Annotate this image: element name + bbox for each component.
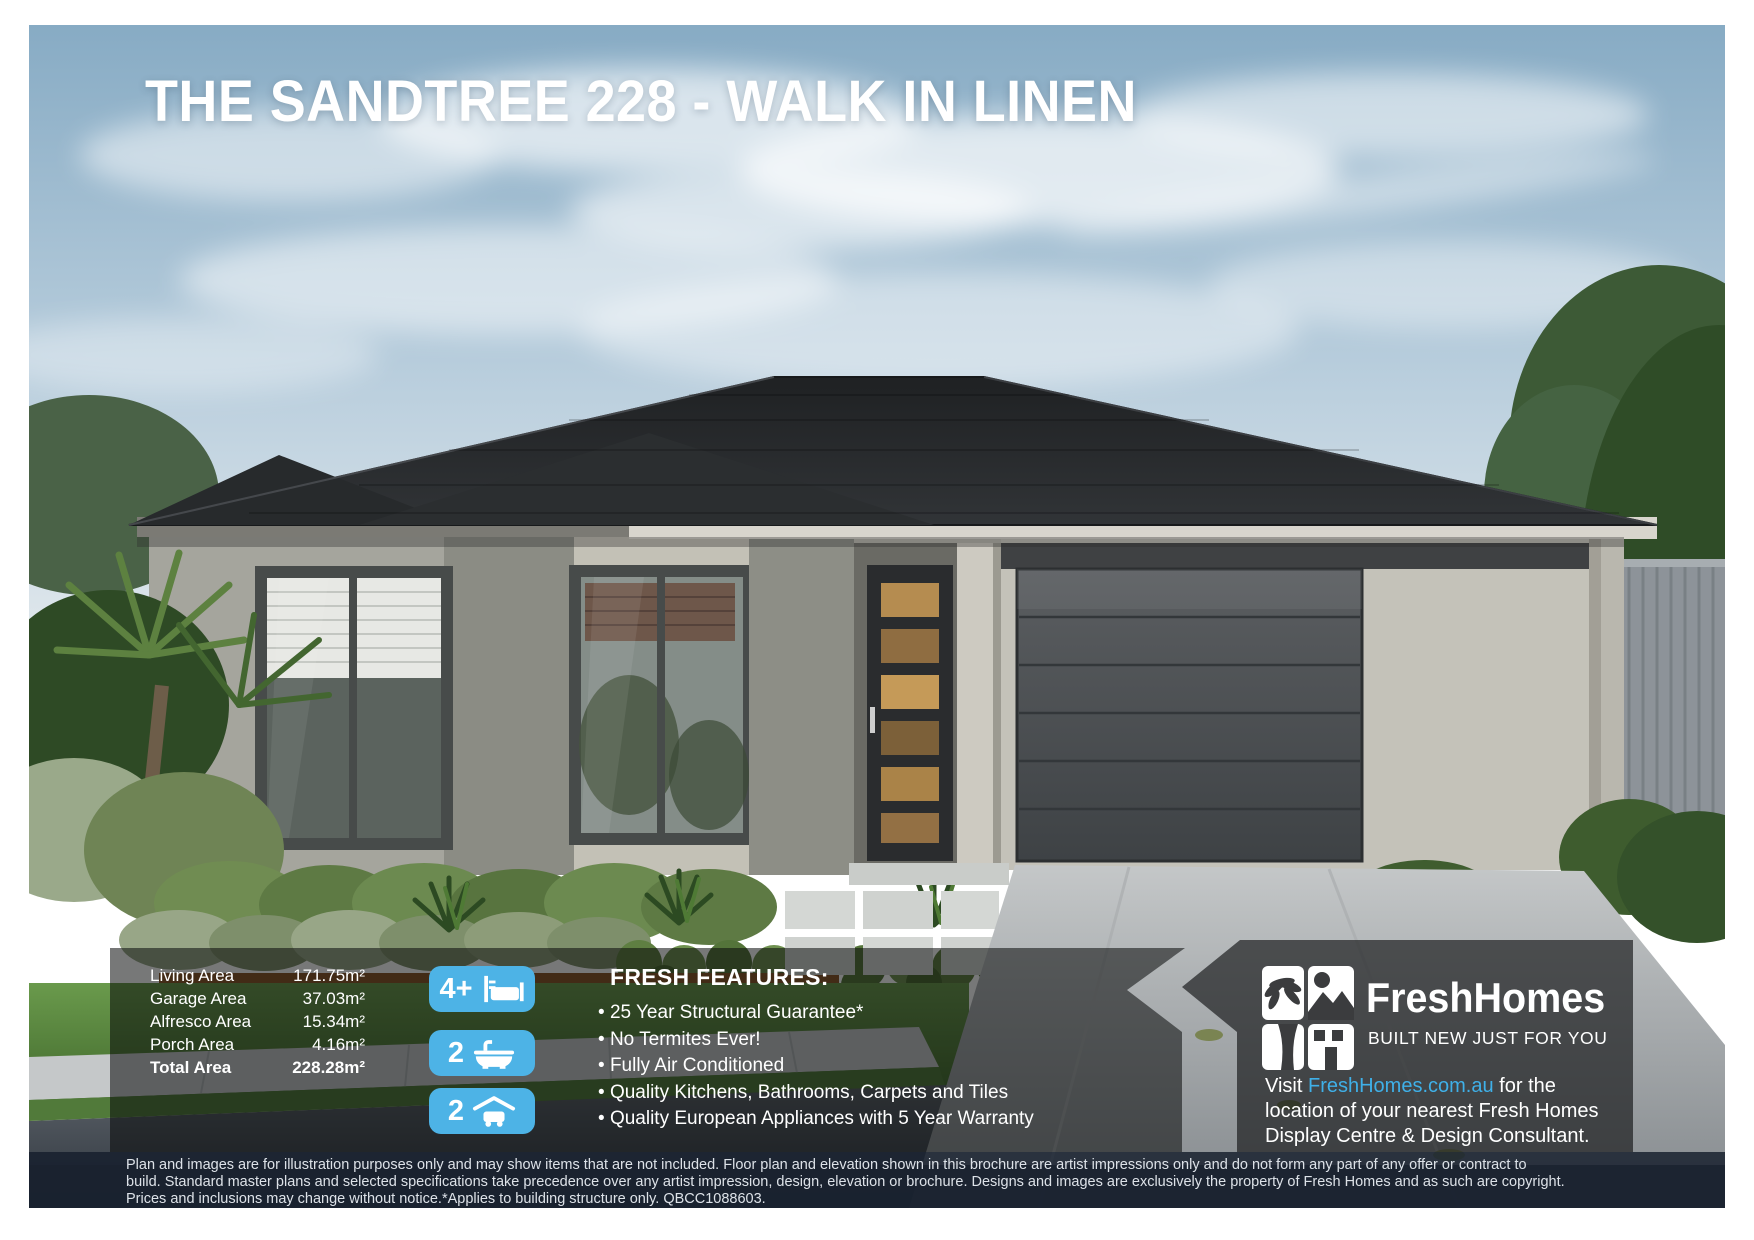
area-row-garage: Garage Area 37.03m² <box>150 987 365 1010</box>
freshhomes-link[interactable]: FreshHomes.com.au <box>1308 1075 1494 1097</box>
features-list: 25 Year Structural Guarantee* No Termite… <box>598 1000 1034 1133</box>
feature-item: 25 Year Structural Guarantee* <box>598 1000 1034 1027</box>
brand-panel: FreshHomes BUILT NEW JUST FOR YOU Visit … <box>1182 940 1633 1152</box>
feature-item: Quality European Appliances with 5 Year … <box>598 1106 1034 1133</box>
left-window <box>255 566 453 850</box>
bed-icon <box>481 974 525 1004</box>
feature-item: No Termites Ever! <box>598 1027 1034 1054</box>
disclaimer-band: Plan and images are for illustration pur… <box>29 1152 1725 1208</box>
feature-item: Fully Air Conditioned <box>598 1053 1034 1080</box>
bathrooms-badge: 2 <box>429 1030 535 1076</box>
bedrooms-badge: 4+ <box>429 966 535 1012</box>
feature-item: Quality Kitchens, Bathrooms, Carpets and… <box>598 1080 1034 1107</box>
visit-line-3: Display Centre & Design Consultant. <box>1265 1124 1599 1149</box>
visit-text: Visit FreshHomes.com.au for the location… <box>1265 1074 1599 1149</box>
brand-name: FreshHomes <box>1366 974 1605 1022</box>
area-table: Living Area 171.75m² Garage Area 37.03m²… <box>150 964 365 1079</box>
front-door <box>867 565 953 861</box>
features-heading: FRESH FEATURES: <box>610 964 829 991</box>
disclaimer-text: Plan and images are for illustration pur… <box>126 1157 1565 1209</box>
brochure-page: THE SANDTREE 228 - WALK IN LINEN Living … <box>0 0 1754 1240</box>
area-row-porch: Porch Area 4.16m² <box>150 1033 365 1056</box>
visit-line-2: location of your nearest Fresh Homes <box>1265 1099 1599 1124</box>
freshhomes-logo-icon <box>1262 966 1354 1075</box>
visit-line-1: Visit FreshHomes.com.au for the <box>1265 1074 1599 1099</box>
garage-icon <box>472 1095 516 1128</box>
area-row-total: Total Area 228.28m² <box>150 1056 365 1079</box>
bath-icon <box>472 1038 516 1069</box>
garage-door <box>1017 569 1362 861</box>
garage-badge: 2 <box>429 1088 535 1134</box>
area-row-living: Living Area 171.75m² <box>150 964 365 987</box>
brand-tagline: BUILT NEW JUST FOR YOU <box>1368 1028 1607 1049</box>
info-band: Living Area 171.75m² Garage Area 37.03m²… <box>110 948 1185 1152</box>
page-title: THE SANDTREE 228 - WALK IN LINEN <box>145 68 1137 135</box>
centre-window <box>569 565 755 845</box>
house-walls <box>137 517 1657 875</box>
area-row-alfresco: Alfresco Area 15.34m² <box>150 1010 365 1033</box>
